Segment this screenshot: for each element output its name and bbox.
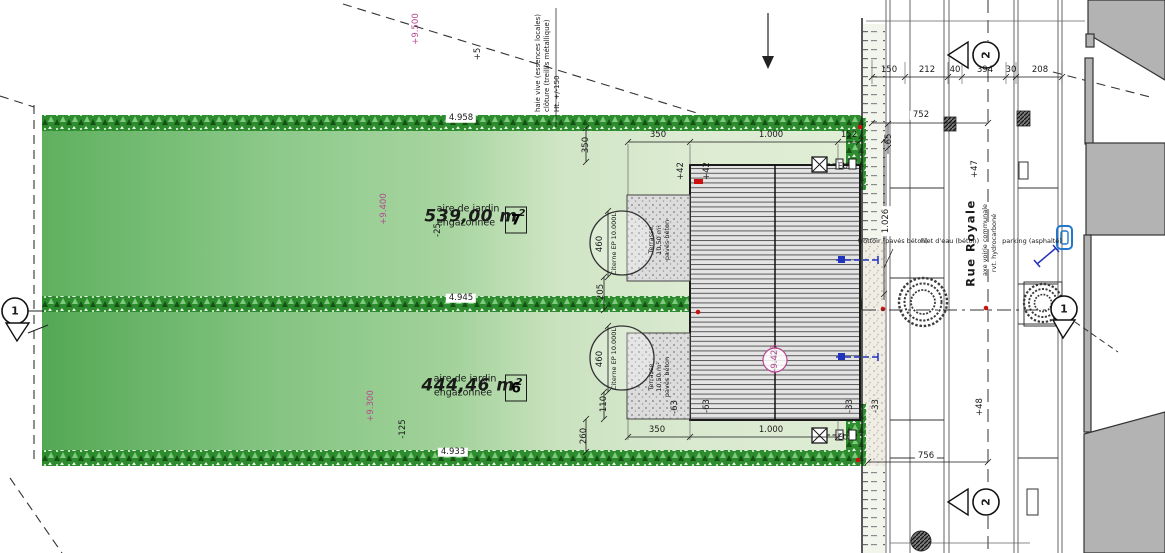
- terrace-2-label: Terrasse 10,50 m² pavés béton: [647, 357, 671, 397]
- street-axis-note: axe voirie communale: [982, 204, 989, 276]
- level-plus42-b: +42: [703, 162, 712, 180]
- level-minus33-b: -33: [872, 399, 881, 413]
- parking-note: parking (asphalté): [1002, 238, 1062, 245]
- dim-cistern-2: 460: [596, 351, 605, 367]
- section-marker-2-bottom: 2: [981, 498, 992, 506]
- parcel-7-offset: -25: [434, 223, 443, 237]
- dim-total-north: 752: [910, 111, 932, 120]
- dim-building-bottom-1: 350: [649, 426, 665, 435]
- sewer-label-2: EU: [838, 433, 848, 441]
- dim-building-bottom-2: 1.000: [759, 426, 783, 435]
- level-minus63-a: -63: [671, 400, 680, 414]
- level-minus33-a: -33: [846, 399, 855, 413]
- fence-note-line-1: haie vive (essences locales): [534, 14, 543, 112]
- parcel-6-offset: -125: [399, 419, 408, 438]
- gutter-note: filet d'eau (béton): [921, 238, 979, 245]
- dim-verge: 65: [885, 134, 894, 145]
- dim-hedge-north: 4.958: [446, 114, 476, 123]
- terrace-area: 10,50 m²: [655, 357, 663, 397]
- parcel-6-label-1: aire de jardin: [434, 374, 497, 384]
- dim-street-6: 208: [1032, 66, 1048, 75]
- sewer-label-1: EU: [838, 162, 848, 170]
- level-south: +48: [976, 398, 985, 416]
- cistern-1-label: Citerne EP 10.000L: [611, 213, 618, 275]
- fence-note-line-3: Ht. +/-150: [553, 14, 562, 112]
- terrace-name: Terrasse: [647, 220, 655, 260]
- street-surface-note: rvt. hydrocarboné: [991, 214, 998, 272]
- parcel-7-elevation: +9.400: [380, 193, 389, 224]
- terrace-material: pavés béton: [663, 357, 671, 397]
- dim-cistern-1: 460: [596, 236, 605, 252]
- sidewalk-note: trottoir (pavés béton): [858, 238, 928, 245]
- level-north: +47: [971, 160, 980, 178]
- terrace-material: pavés béton: [663, 220, 671, 260]
- dim-hedge-middle: 4.945: [446, 294, 476, 303]
- terrace-name: Terrasse: [647, 357, 655, 397]
- dim-building-top-2: 1.000: [759, 131, 783, 140]
- boundary-offset: +5: [474, 48, 483, 61]
- dim-building-left-3: 205: [597, 284, 606, 300]
- dim-street-5: 30: [1006, 66, 1017, 75]
- boundary-elevation: +9.500: [412, 13, 421, 44]
- terrace-1-label: Terrasse 10,50 m² pavés béton: [647, 220, 671, 260]
- parcel-7-label-1: aire de jardin: [437, 204, 500, 214]
- dim-frontage: 1.026: [882, 206, 891, 236]
- dim-building-left-6: 260: [580, 428, 589, 444]
- section-marker-2-top: 2: [981, 51, 992, 59]
- dim-building-left-1: 350: [582, 137, 591, 153]
- parcel-7-label-2: engazonnée: [437, 218, 495, 228]
- parcel-6-label-2: engazonnée: [434, 388, 492, 398]
- dim-building-top-3: 152: [841, 131, 857, 140]
- dim-street-3: 40: [950, 66, 961, 75]
- dim-street-4: 394: [977, 66, 993, 75]
- cistern-2-label: Citerne EP 10.000L: [611, 328, 618, 390]
- site-plan: 4.958 4.945 4.933 539,00 m² aire de jard…: [0, 0, 1165, 553]
- neighbor-buildings: [1084, 0, 1165, 553]
- dim-street-1: 150: [881, 66, 897, 75]
- level-minus63-b: -63: [703, 399, 712, 413]
- access-arrow-icon: [762, 13, 774, 69]
- dim-street-2: 212: [919, 66, 935, 75]
- site-plan-linework: [0, 0, 1165, 553]
- section-marker-1-right: 1: [1060, 304, 1068, 315]
- fence-note-line-2: clôture (treillis métallique): [543, 14, 552, 112]
- dim-total-south: 756: [915, 452, 937, 461]
- terrace-area: 10,50 m²: [655, 220, 663, 260]
- roof-elevation: +9.425: [771, 344, 780, 375]
- parcel-6-elevation: +9.300: [367, 390, 376, 421]
- section-marker-1-left: 1: [11, 306, 19, 317]
- dim-building-top-1: 350: [650, 131, 666, 140]
- tree-icon: [899, 278, 1062, 326]
- parcel-7-number: 7: [505, 207, 527, 234]
- street-ground: [863, 24, 885, 553]
- level-plus42-a: +42: [677, 162, 686, 180]
- dim-hedge-south: 4.933: [438, 448, 468, 457]
- fence-note: haie vive (essences locales) clôture (tr…: [534, 14, 562, 112]
- dim-building-left-5: 110: [600, 396, 609, 412]
- parcel-6-number: 6: [505, 375, 527, 402]
